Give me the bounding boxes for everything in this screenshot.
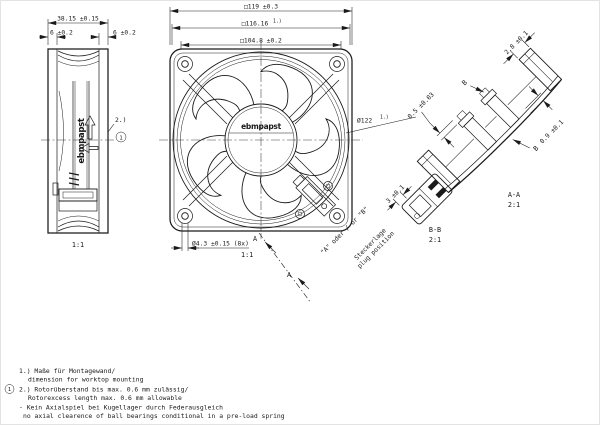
impeller-blades — [178, 55, 354, 232]
section-arrow-a2: A — [287, 271, 291, 279]
dim-flange-right: 6 ±0.2 — [91, 30, 136, 46]
section-aa-title: A-A — [508, 191, 520, 199]
hub-logo: ebmpapst — [241, 122, 281, 131]
spring-detail — [69, 173, 79, 185]
dim-flange-left-text: 6 ±0.2 — [50, 30, 73, 37]
note-line-3: 2.) Rotorüberstand bis max. 0.6 mm zuläs… — [19, 386, 188, 394]
note-line-1: 1.) Maße für Montagewand/ — [19, 367, 115, 375]
section-aa-scale: 2:1 — [508, 201, 520, 209]
dim-lip-aa: 0.5 ±0.03 — [407, 91, 471, 155]
dim-outer-text: □119 ±0.3 — [244, 4, 278, 11]
dim-holes-text: Ø4.3 ±0.15 (8x) — [192, 240, 249, 248]
front-view-linework — [159, 41, 363, 239]
detail-ref-b2-text: B — [532, 144, 541, 153]
note-line-2: dimension for worktop mounting — [28, 376, 144, 384]
notes-block: 1.) Maße für Montagewand/ dimension for … — [5, 367, 285, 420]
front-scale-label: 1:1 — [241, 251, 253, 259]
side-scale-label: 1:1 — [72, 241, 84, 249]
section-aa-linework — [414, 45, 563, 194]
dim-mounting-sup: 1.) — [273, 19, 282, 25]
note-marker-text: 1 — [8, 387, 11, 393]
dim-flange-right-text: 6 ±0.2 — [113, 30, 136, 37]
detail-bb-scale: 2:1 — [429, 236, 441, 244]
dim-lip-aa-text: 0.5 ±0.03 — [407, 91, 436, 120]
dim-venturi: Ø122 1.) — [346, 115, 416, 134]
note-line-6: no axial clearence of ball bearings cond… — [23, 412, 285, 420]
note-line-5: - Kein Axialspiel bei Kugellager durch F… — [19, 404, 223, 412]
section-aa-view: 2.8 ±0.1 0.5 ±0.03 B B — [389, 10, 596, 217]
side-view: ebmpapst 38.15 ±0.15 6 ±0.2 6 ±0.2 2.) 1 — [39, 16, 136, 250]
plug-position-label: Steckerlage plug position — [351, 224, 397, 270]
side-note-marker-text: 1 — [119, 136, 122, 142]
drawing-page: ebmpapst 38.15 ±0.15 6 ±0.2 6 ±0.2 2.) 1 — [0, 0, 600, 425]
side-logo: ebmpapst — [77, 118, 87, 164]
side-note-ref-text: 2.) — [115, 117, 126, 124]
section-line-a: A A — [253, 233, 311, 303]
side-note-ref: 2.) 1 — [108, 117, 126, 142]
dim-venturi-text: Ø122 — [357, 117, 372, 125]
dim-width-bb: 3 ±0.1 — [381, 180, 415, 214]
dim-flange-left: 6 ±0.2 — [39, 30, 73, 46]
dim-mounting-text: □116.16 — [242, 21, 269, 28]
detail-ref-b1: B — [460, 75, 483, 98]
dim-wall-aa: 0.9 ±0.1 — [507, 84, 569, 146]
section-arrow-a1: A — [253, 235, 257, 243]
dim-inner-text: □104.8 ±0.2 — [240, 38, 282, 45]
detail-ref-b1-text: B — [460, 79, 469, 88]
dim-venturi-sup: 1.) — [380, 115, 389, 121]
detail-bb-linework — [401, 173, 453, 225]
dim-wall-aa-text: 0.9 ±0.1 — [539, 119, 566, 146]
detail-ref-b2: B — [513, 131, 541, 159]
fan-technical-drawing: ebmpapst 38.15 ±0.15 6 ±0.2 6 ±0.2 2.) 1 — [1, 1, 600, 425]
dim-depth-text: 38.15 ±0.15 — [57, 16, 99, 23]
note-line-4: Rotorexcess length max. 0.6 mm allowable — [28, 394, 182, 402]
front-view: ebmpapst □119 ±0.3 □116.16 1.) □104.8 ±0… — [159, 4, 416, 304]
detail-bb-title: B-B — [429, 226, 441, 234]
